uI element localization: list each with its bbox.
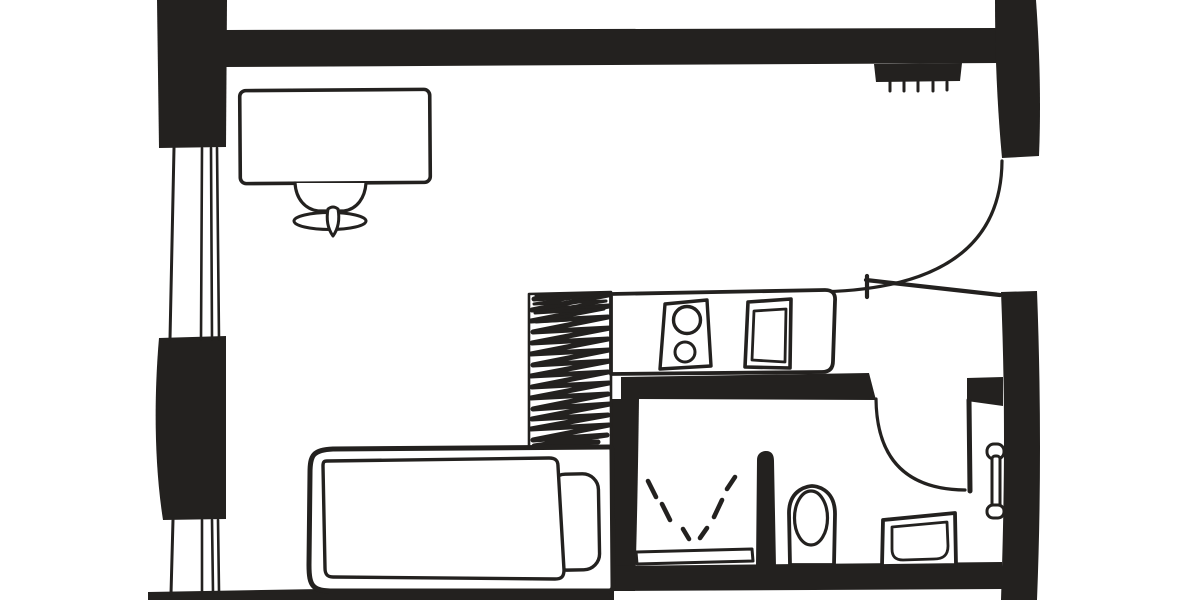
bathroom-fixtures [636,444,1004,567]
desk-chair [294,183,366,236]
kitchen-sink [745,299,791,368]
stove-two-burner [660,300,711,369]
left-wall-upper [157,0,227,148]
burner-large [674,307,701,334]
burner-small [675,342,695,362]
bathroom-top-wall [621,373,876,400]
kitchen-counter [611,290,835,374]
right-wall-lower [1001,291,1040,600]
window-lower [171,520,219,594]
toilet-bowl [795,491,828,545]
entrance-door [815,161,1002,297]
desk [240,89,431,183]
toilet [789,486,835,565]
chair-stem [327,207,339,236]
bathroom-door-leaf [969,400,970,491]
shower-partition [756,451,776,567]
left-wall-pier [156,336,226,520]
entrance-door-arc [815,161,1002,292]
window-upper [170,148,219,339]
shower-spray [648,477,735,539]
floor-plan [0,0,1200,600]
radiator [874,63,962,91]
mattress [323,458,564,579]
doors [815,161,1002,491]
bed [309,447,613,591]
bathroom-door [876,399,970,491]
shower-tray [636,549,753,564]
washbasin [882,513,956,566]
kitchen [611,290,835,374]
hatched-cabinet [529,292,611,449]
radiator-fins [890,82,947,91]
towel-rail [987,444,1004,518]
desk-area [240,89,431,236]
radiator-body [874,63,962,82]
right-wall-upper [995,0,1040,158]
bathroom-top-wall-stub [967,377,1003,406]
bathroom-door-arc [876,399,965,490]
top-wall [225,28,1000,67]
